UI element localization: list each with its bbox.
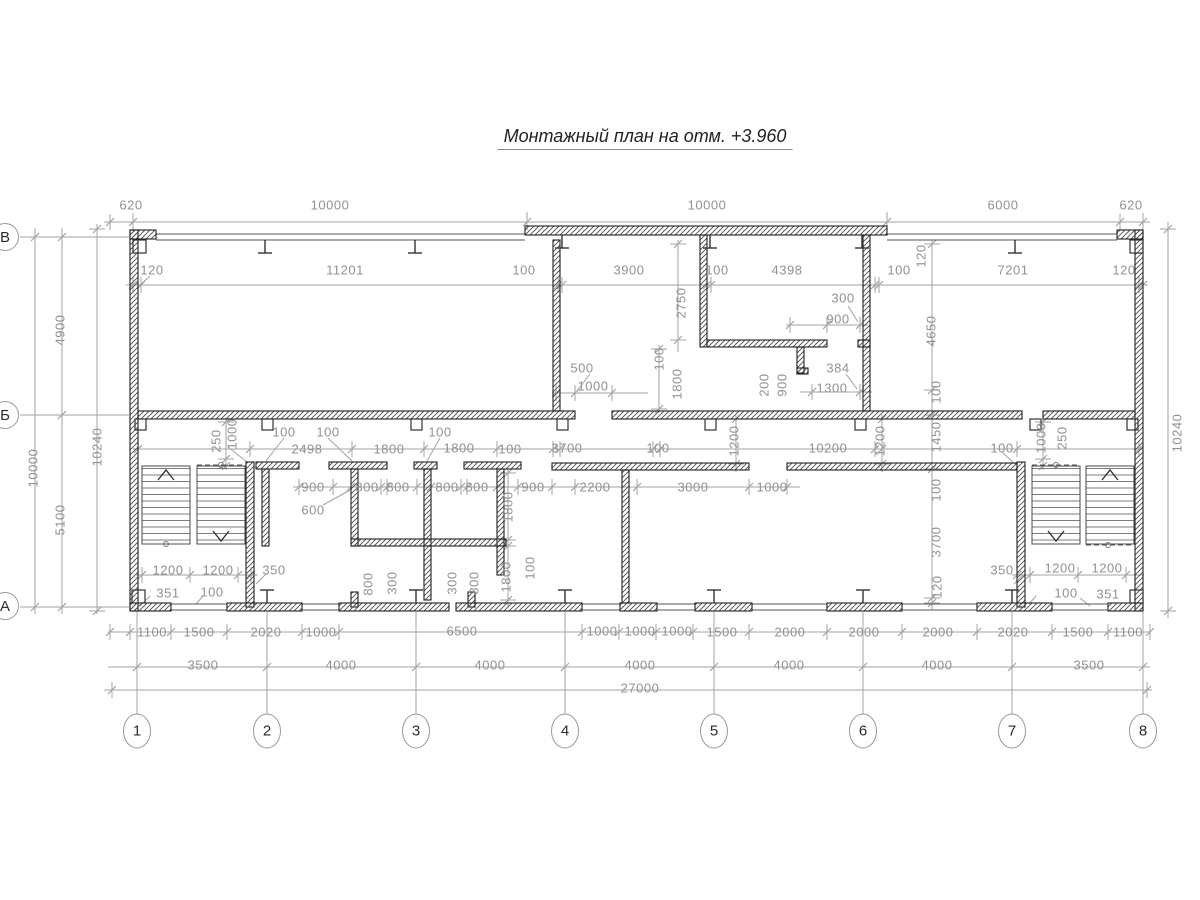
drawing-title: Монтажный план на отм. +3.960 <box>498 126 793 150</box>
stairs-layer <box>142 463 1134 548</box>
drawing-canvas: 6201000010000600062012011201100390010043… <box>0 0 1200 900</box>
walls-layer <box>130 226 1143 611</box>
leader-lines-layer <box>139 276 1090 606</box>
windows-layer <box>156 234 1117 610</box>
